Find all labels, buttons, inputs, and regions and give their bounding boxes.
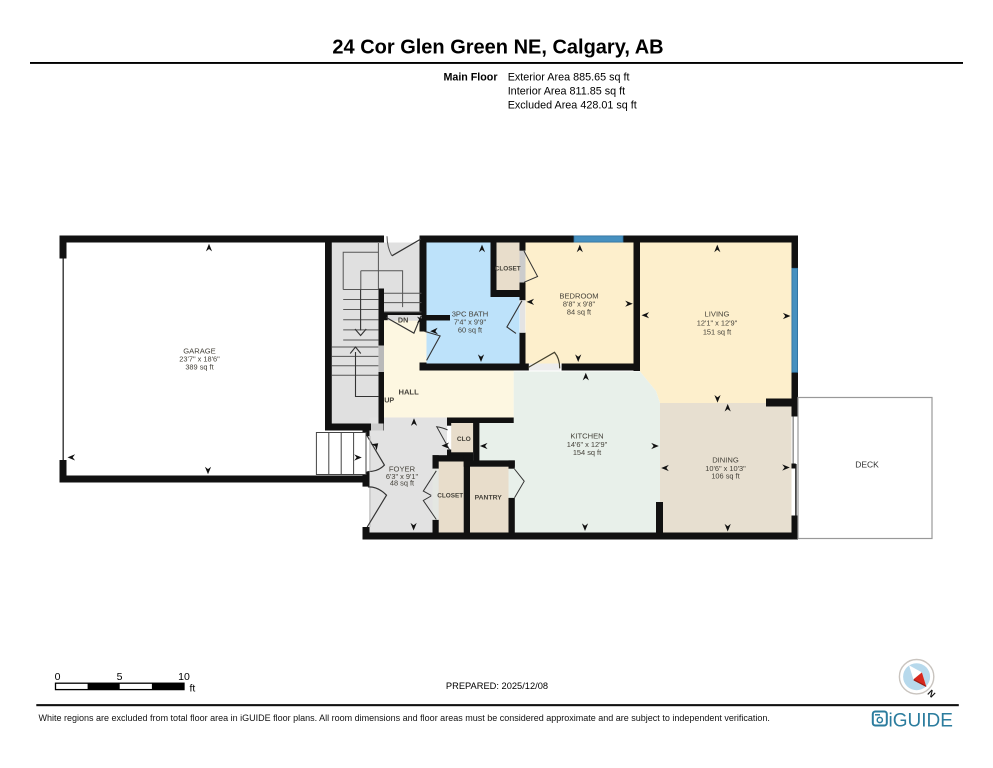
svg-text:24 Cor Glen Green NE, Calgary,: 24 Cor Glen Green NE, Calgary, AB (332, 37, 663, 59)
svg-text:UP: UP (384, 395, 394, 404)
svg-text:White regions are excluded fro: White regions are excluded from total fl… (39, 713, 770, 723)
svg-text:84 sq ft: 84 sq ft (567, 308, 591, 317)
svg-text:ft: ft (190, 683, 196, 695)
svg-text:106 sq ft: 106 sq ft (711, 472, 739, 481)
svg-text:48 sq ft: 48 sq ft (390, 479, 414, 488)
svg-text:154 sq ft: 154 sq ft (573, 448, 601, 457)
svg-text:PREPARED: 2025/12/08: PREPARED: 2025/12/08 (446, 681, 548, 691)
svg-text:PANTRY: PANTRY (475, 494, 503, 501)
svg-text:Main Floor: Main Floor (443, 71, 497, 83)
svg-text:5: 5 (117, 671, 123, 683)
svg-text:12'1" x 12'9": 12'1" x 12'9" (697, 319, 738, 328)
svg-text:10: 10 (178, 671, 190, 683)
svg-text:389 sq ft: 389 sq ft (185, 362, 213, 371)
svg-text:60 sq ft: 60 sq ft (458, 326, 482, 335)
svg-text:HALL: HALL (398, 388, 419, 397)
svg-text:Interior Area 811.85 sq ft: Interior Area 811.85 sq ft (508, 85, 625, 97)
svg-text:LIVING: LIVING (705, 310, 730, 319)
svg-text:Exterior Area 885.65 sq ft: Exterior Area 885.65 sq ft (508, 71, 630, 83)
svg-text:iGUIDE: iGUIDE (889, 711, 953, 732)
svg-text:151 sq ft: 151 sq ft (703, 327, 731, 336)
svg-text:CLO: CLO (457, 436, 471, 443)
svg-text:Excluded Area 428.01 sq ft: Excluded Area 428.01 sq ft (508, 99, 637, 111)
svg-text:DN: DN (398, 315, 408, 324)
svg-text:DECK: DECK (855, 460, 879, 470)
svg-text:0: 0 (55, 671, 61, 683)
svg-text:CLOSET: CLOSET (437, 493, 463, 500)
svg-text:CLOSET: CLOSET (495, 265, 521, 272)
